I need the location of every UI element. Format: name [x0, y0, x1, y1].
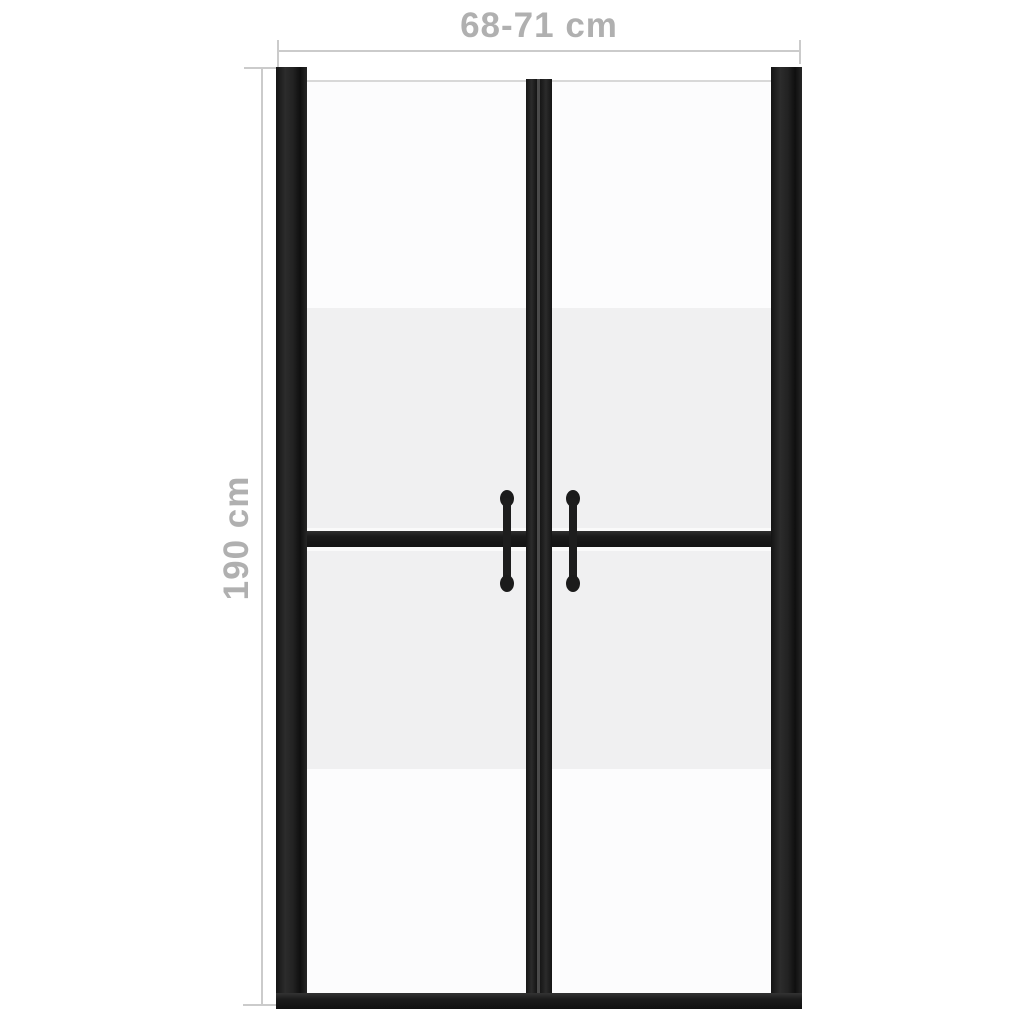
- right-panel-stile: [540, 79, 552, 993]
- width-dimension-line: [278, 50, 800, 52]
- product-image: 68-71 cm 190 cm: [0, 0, 1024, 1024]
- door-bottom-rail: [276, 993, 802, 1009]
- center-door-stiles: [526, 79, 552, 993]
- door-frame-left-post: [276, 67, 307, 1009]
- handle-shaft: [503, 498, 511, 584]
- width-dimension-label: 68-71 cm: [460, 6, 618, 46]
- handle-knob-bottom: [500, 575, 514, 592]
- handle-knob-bottom: [566, 575, 580, 592]
- door-handle-left: [500, 490, 514, 592]
- height-dimension-tick-bottom: [243, 1004, 277, 1006]
- height-dimension-line: [261, 68, 263, 1006]
- left-panel-stile: [526, 79, 537, 993]
- height-dimension-label: 190 cm: [217, 476, 257, 601]
- door-frame-right-post: [771, 67, 802, 1009]
- height-dimension-tick-top: [244, 67, 278, 69]
- width-dimension-tick-left: [277, 40, 279, 68]
- handle-shaft: [569, 498, 577, 584]
- door-handle-right: [566, 490, 580, 592]
- width-dimension-tick-right: [799, 40, 801, 64]
